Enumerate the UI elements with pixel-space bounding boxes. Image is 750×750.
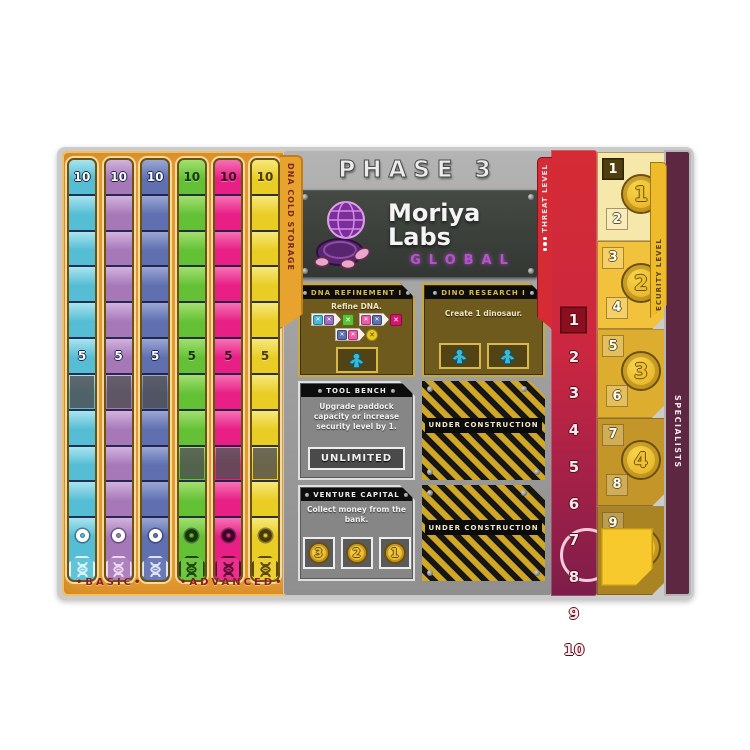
dna-track-cell-7[interactable] bbox=[215, 267, 241, 303]
dna-track-cell-9[interactable] bbox=[69, 196, 95, 232]
main-panel: PHASE 3 Moriya Labs GLOBAL bbox=[283, 150, 553, 596]
dna-chip-icon: ✕ bbox=[348, 330, 358, 340]
dna-track-cells: 105 bbox=[215, 160, 241, 552]
dna-cold-storage-panel: 105105105105105105 •BASIC• •ADVANCED• DN… bbox=[62, 151, 302, 596]
dna-track-cell-7[interactable] bbox=[142, 267, 168, 303]
dna-track-cell-8[interactable] bbox=[252, 232, 278, 268]
zero-marker-icon bbox=[185, 529, 198, 542]
dna-track-cell-4[interactable] bbox=[179, 375, 205, 411]
dna-track-cell-7[interactable] bbox=[69, 267, 95, 303]
dna-track-cell-10[interactable]: 10 bbox=[106, 160, 132, 196]
dna-track-cell-0[interactable] bbox=[69, 518, 95, 552]
dna-track-cell-10[interactable]: 10 bbox=[252, 160, 278, 196]
cell-value: 5 bbox=[114, 350, 122, 362]
dna-chip-icon: ✕ bbox=[372, 315, 382, 325]
dna-track-cell-2[interactable] bbox=[215, 447, 241, 483]
dna-recipe: ✕✕✕ bbox=[359, 313, 402, 326]
company-logo-plate: Moriya Labs GLOBAL bbox=[298, 190, 538, 278]
tool-bench-panel: TOOL BENCH Upgrade paddock capacity or i… bbox=[298, 381, 415, 480]
advanced-group-label: •ADVANCED• bbox=[180, 577, 284, 588]
dna-track-cell-6[interactable] bbox=[179, 303, 205, 339]
zero-marker-icon bbox=[149, 529, 162, 542]
dna-refinement-recipes: ✕✕✕✕✕✕✕✕✕ bbox=[301, 313, 412, 341]
zero-marker-icon bbox=[76, 529, 89, 542]
rivet-icon bbox=[303, 291, 307, 295]
dna-track-cell-2[interactable] bbox=[179, 447, 205, 483]
venture-coin-slot[interactable]: 1 bbox=[379, 537, 411, 569]
tool-bench-header: TOOL BENCH bbox=[301, 384, 412, 397]
dna-track-cells: 105 bbox=[142, 160, 168, 552]
company-name-block: Moriya Labs GLOBAL bbox=[388, 201, 538, 268]
dna-track-green: 105 bbox=[177, 158, 207, 582]
threat-level-3[interactable]: 3 bbox=[551, 384, 597, 402]
dna-track-cells: 105 bbox=[106, 160, 132, 552]
security-level-4[interactable]: 4 bbox=[606, 297, 628, 319]
dna-recipe: ✕✕✕ bbox=[335, 328, 378, 341]
grayed-cell-overlay bbox=[180, 448, 204, 480]
phase-title: PHASE 3 bbox=[283, 157, 553, 183]
dna-track-cell-5[interactable]: 5 bbox=[215, 339, 241, 375]
dna-track-cell-1[interactable] bbox=[106, 482, 132, 518]
dna-track-purple: 105 bbox=[104, 158, 134, 582]
dna-track-cell-2[interactable] bbox=[69, 447, 95, 483]
dna-track-cell-0[interactable] bbox=[215, 518, 241, 552]
dna-output-icon: ✕ bbox=[366, 329, 378, 341]
recipe-input-tag: ✕✕ bbox=[335, 328, 365, 341]
cell-value: 10 bbox=[147, 171, 164, 183]
dna-track-cell-10[interactable]: 10 bbox=[142, 160, 168, 196]
rivet-icon bbox=[318, 389, 322, 393]
rivet-icon bbox=[534, 469, 540, 475]
dna-track-cell-2[interactable] bbox=[252, 447, 278, 483]
dna-track-cell-7[interactable] bbox=[106, 267, 132, 303]
dino-research-text: Create 1 dinosaur. bbox=[426, 309, 541, 319]
recipe-input-tag: ✕✕ bbox=[311, 313, 341, 326]
cell-value: 5 bbox=[151, 350, 159, 362]
venture-coin-slot[interactable]: 2 bbox=[341, 537, 373, 569]
dna-track-cyan: 105 bbox=[67, 158, 97, 582]
dna-track-cell-6[interactable] bbox=[142, 303, 168, 339]
cell-value: 10 bbox=[183, 171, 200, 183]
dna-track-cell-1[interactable] bbox=[252, 482, 278, 518]
dna-track-cell-6[interactable] bbox=[69, 303, 95, 339]
dna-track-cell-9[interactable] bbox=[142, 196, 168, 232]
cell-value: 5 bbox=[261, 350, 269, 362]
grayed-cell-overlay bbox=[216, 448, 240, 480]
dna-track-cell-1[interactable] bbox=[142, 482, 168, 518]
tool-bench-text: Upgrade paddock capacity or increase sec… bbox=[302, 402, 411, 432]
dna-track-cell-2[interactable] bbox=[106, 447, 132, 483]
dna-track-cells: 105 bbox=[252, 160, 278, 552]
dna-refinement-text: Refine DNA. bbox=[302, 302, 411, 312]
dna-track-cell-4[interactable] bbox=[142, 375, 168, 411]
dna-track-magenta: 105 bbox=[213, 158, 243, 582]
security-level-2[interactable]: 2 bbox=[606, 208, 628, 230]
recipe-input-tag: ✕✕ bbox=[359, 313, 389, 326]
basic-group-label: •BASIC• bbox=[76, 577, 143, 588]
dna-track-cell-9[interactable] bbox=[252, 196, 278, 232]
dna-output-icon: ✕ bbox=[390, 314, 402, 326]
dna-track-cell-1[interactable] bbox=[179, 482, 205, 518]
threat-level-7[interactable]: 7 bbox=[551, 531, 597, 549]
threat-level-5[interactable]: 5 bbox=[551, 458, 597, 476]
dna-cold-storage-tab: DNA COLD STORAGE bbox=[280, 155, 303, 329]
venture-capital-panel: VENTURE CAPITAL Collect money from the b… bbox=[298, 485, 415, 581]
rivet-icon bbox=[534, 570, 540, 576]
threat-level-label: THREAT LEVEL bbox=[541, 164, 549, 233]
security-level-8[interactable]: 8 bbox=[606, 474, 628, 496]
under-construction-label: UNDER CONSTRUCTION bbox=[425, 418, 542, 433]
dna-track-cell-10[interactable]: 10 bbox=[215, 160, 241, 196]
dna-track-cell-3[interactable] bbox=[142, 411, 168, 447]
dna-track-cell-6[interactable] bbox=[252, 303, 278, 339]
turtle-globe-logo-icon bbox=[304, 194, 386, 274]
dna-track-cell-4[interactable] bbox=[252, 375, 278, 411]
security-level-1[interactable]: 1 bbox=[602, 158, 624, 180]
dna-track-cell-8[interactable] bbox=[215, 232, 241, 268]
security-level-5[interactable]: 5 bbox=[602, 335, 624, 357]
threat-level-9[interactable]: 9 bbox=[551, 605, 597, 623]
dna-track-cell-10[interactable]: 10 bbox=[179, 160, 205, 196]
dna-track-cell-6[interactable] bbox=[215, 303, 241, 339]
dna-track-cell-3[interactable] bbox=[215, 411, 241, 447]
research-worker-slot[interactable] bbox=[487, 343, 529, 369]
dna-chip-icon: ✕ bbox=[361, 315, 371, 325]
dna-track-cell-8[interactable] bbox=[69, 232, 95, 268]
dna-track-blue: 105 bbox=[140, 158, 170, 582]
dna-track-cell-9[interactable] bbox=[106, 196, 132, 232]
rivet-icon bbox=[427, 386, 433, 392]
dna-chip-icon: ✕ bbox=[324, 315, 334, 325]
zero-marker-icon bbox=[112, 529, 125, 542]
grayed-cell-overlay bbox=[70, 376, 94, 408]
dna-helix-badge-icon bbox=[142, 556, 168, 582]
dna-track-cell-0[interactable] bbox=[252, 518, 278, 552]
dna-refinement-header: DNA REFINEMENT I bbox=[301, 286, 412, 299]
threat-level-6[interactable]: 6 bbox=[551, 495, 597, 513]
grayed-cell-overlay bbox=[143, 376, 167, 408]
coin-icon: 1 bbox=[384, 542, 406, 564]
venture-coin-slot[interactable]: 3 bbox=[303, 537, 335, 569]
threat-dots-icon bbox=[543, 237, 547, 252]
dna-track-cell-8[interactable] bbox=[142, 232, 168, 268]
dna-track-cell-3[interactable] bbox=[69, 411, 95, 447]
dna-track-cell-3[interactable] bbox=[106, 411, 132, 447]
dna-track-cell-1[interactable] bbox=[215, 482, 241, 518]
under-construction-panel-1: UNDER CONSTRUCTION bbox=[422, 381, 545, 480]
dna-track-cells: 105 bbox=[179, 160, 205, 552]
cell-value: 5 bbox=[224, 350, 232, 362]
dna-recipe: ✕✕✕ bbox=[311, 313, 354, 326]
threat-level-10[interactable]: 10 bbox=[551, 641, 597, 659]
rivet-icon bbox=[528, 194, 534, 200]
company-subtitle: GLOBAL bbox=[388, 253, 538, 268]
dna-track-cell-10[interactable]: 10 bbox=[69, 160, 95, 196]
dna-track-cell-3[interactable] bbox=[179, 411, 205, 447]
player-board: 105105105105105105 •BASIC• •ADVANCED• DN… bbox=[0, 0, 750, 750]
dna-track-cell-0[interactable] bbox=[142, 518, 168, 552]
dna-track-cell-9[interactable] bbox=[179, 196, 205, 232]
security-level-6[interactable]: 6 bbox=[606, 385, 628, 407]
cell-value: 10 bbox=[110, 171, 127, 183]
dna-track-cell-5[interactable]: 5 bbox=[69, 339, 95, 375]
dna-track-cell-5[interactable]: 5 bbox=[106, 339, 132, 375]
dna-track-cell-5[interactable]: 5 bbox=[252, 339, 278, 375]
cell-value: 5 bbox=[188, 350, 196, 362]
rivet-icon bbox=[521, 386, 527, 392]
dna-track-cell-2[interactable] bbox=[142, 447, 168, 483]
security-coin-icon: 4 bbox=[621, 440, 661, 480]
rivet-icon bbox=[427, 469, 433, 475]
dna-chip-icon: ✕ bbox=[313, 315, 323, 325]
research-worker-slot[interactable] bbox=[439, 343, 481, 369]
security-group: 563 bbox=[597, 329, 665, 418]
dna-track-cell-9[interactable] bbox=[215, 196, 241, 232]
threat-level-4[interactable]: 4 bbox=[551, 421, 597, 439]
rivet-icon bbox=[305, 493, 309, 497]
security-coin-icon: 3 bbox=[621, 351, 661, 391]
under-construction-panel-2: UNDER CONSTRUCTION bbox=[422, 485, 545, 581]
zero-marker-icon bbox=[222, 529, 235, 542]
threat-level-1[interactable]: 1 bbox=[551, 311, 597, 329]
dna-cold-storage-label: DNA COLD STORAGE bbox=[286, 163, 295, 327]
company-name: Moriya Labs bbox=[388, 201, 538, 249]
dna-track-cell-7[interactable] bbox=[252, 267, 278, 303]
dna-output-icon: ✕ bbox=[342, 314, 354, 326]
cell-value: 5 bbox=[78, 350, 86, 362]
threat-level-tab: THREAT LEVEL bbox=[537, 157, 552, 329]
dna-track-cell-4[interactable] bbox=[215, 375, 241, 411]
rivet-icon bbox=[528, 268, 534, 274]
threat-level-8[interactable]: 8 bbox=[551, 568, 597, 586]
dna-track-cell-7[interactable] bbox=[179, 267, 205, 303]
dna-track-cells: 105 bbox=[69, 160, 95, 552]
refinement-worker-slot[interactable] bbox=[336, 347, 378, 373]
under-construction-label: UNDER CONSTRUCTION bbox=[425, 520, 542, 535]
coin-icon: 2 bbox=[346, 542, 368, 564]
security-level-tab: SECURITY LEVEL bbox=[650, 162, 667, 318]
dna-chip-icon: ✕ bbox=[337, 330, 347, 340]
threat-level-2[interactable]: 2 bbox=[551, 348, 597, 366]
dna-track-cell-5[interactable]: 5 bbox=[142, 339, 168, 375]
dino-research-header: DINO RESEARCH I bbox=[425, 286, 542, 299]
security-level-3[interactable]: 3 bbox=[602, 247, 624, 269]
specialists-strip[interactable]: SPECIALISTS bbox=[664, 150, 691, 596]
rivet-icon bbox=[427, 570, 433, 576]
rivet-icon bbox=[427, 490, 433, 496]
dna-track-cell-0[interactable] bbox=[179, 518, 205, 552]
rivet-icon bbox=[521, 490, 527, 496]
dna-track-cell-4[interactable] bbox=[69, 375, 95, 411]
dna-track-cell-5[interactable]: 5 bbox=[179, 339, 205, 375]
grayed-cell-overlay bbox=[107, 376, 131, 408]
dino-research-panel: DINO RESEARCH I Create 1 dinosaur. bbox=[422, 283, 545, 377]
dna-track-cell-1[interactable] bbox=[69, 482, 95, 518]
rivet-icon bbox=[404, 493, 408, 497]
dna-track-cell-4[interactable] bbox=[106, 375, 132, 411]
grayed-cell-overlay bbox=[253, 448, 277, 480]
rivet-icon bbox=[530, 291, 534, 295]
security-group: 784 bbox=[597, 418, 665, 507]
cell-value: 10 bbox=[257, 171, 274, 183]
dna-track-cell-3[interactable] bbox=[252, 411, 278, 447]
rivet-icon bbox=[406, 291, 410, 295]
dna-refinement-panel: DNA REFINEMENT I Refine DNA. ✕✕✕✕✕✕✕✕✕ bbox=[298, 283, 415, 377]
dna-track-cell-0[interactable] bbox=[106, 518, 132, 552]
dna-track-cell-6[interactable] bbox=[106, 303, 132, 339]
tool-bench-slot[interactable]: UNLIMITED bbox=[308, 447, 405, 470]
dna-track-cell-8[interactable] bbox=[179, 232, 205, 268]
venture-capital-text: Collect money from the bank. bbox=[302, 505, 411, 525]
cell-value: 10 bbox=[220, 171, 237, 183]
coin-icon: 3 bbox=[308, 542, 330, 564]
threat-level-track: 12345678910 bbox=[551, 150, 597, 596]
dna-track-yellow: 105 bbox=[250, 158, 280, 582]
specialists-label: SPECIALISTS bbox=[673, 395, 682, 469]
cell-value: 10 bbox=[74, 171, 91, 183]
dna-track-cell-8[interactable] bbox=[106, 232, 132, 268]
rivet-icon bbox=[391, 389, 395, 393]
security-level-label: SECURITY LEVEL bbox=[655, 169, 663, 317]
venture-capital-header: VENTURE CAPITAL bbox=[301, 488, 412, 501]
security-level-7[interactable]: 7 bbox=[602, 424, 624, 446]
rivet-icon bbox=[433, 291, 437, 295]
zero-marker-icon bbox=[259, 529, 272, 542]
